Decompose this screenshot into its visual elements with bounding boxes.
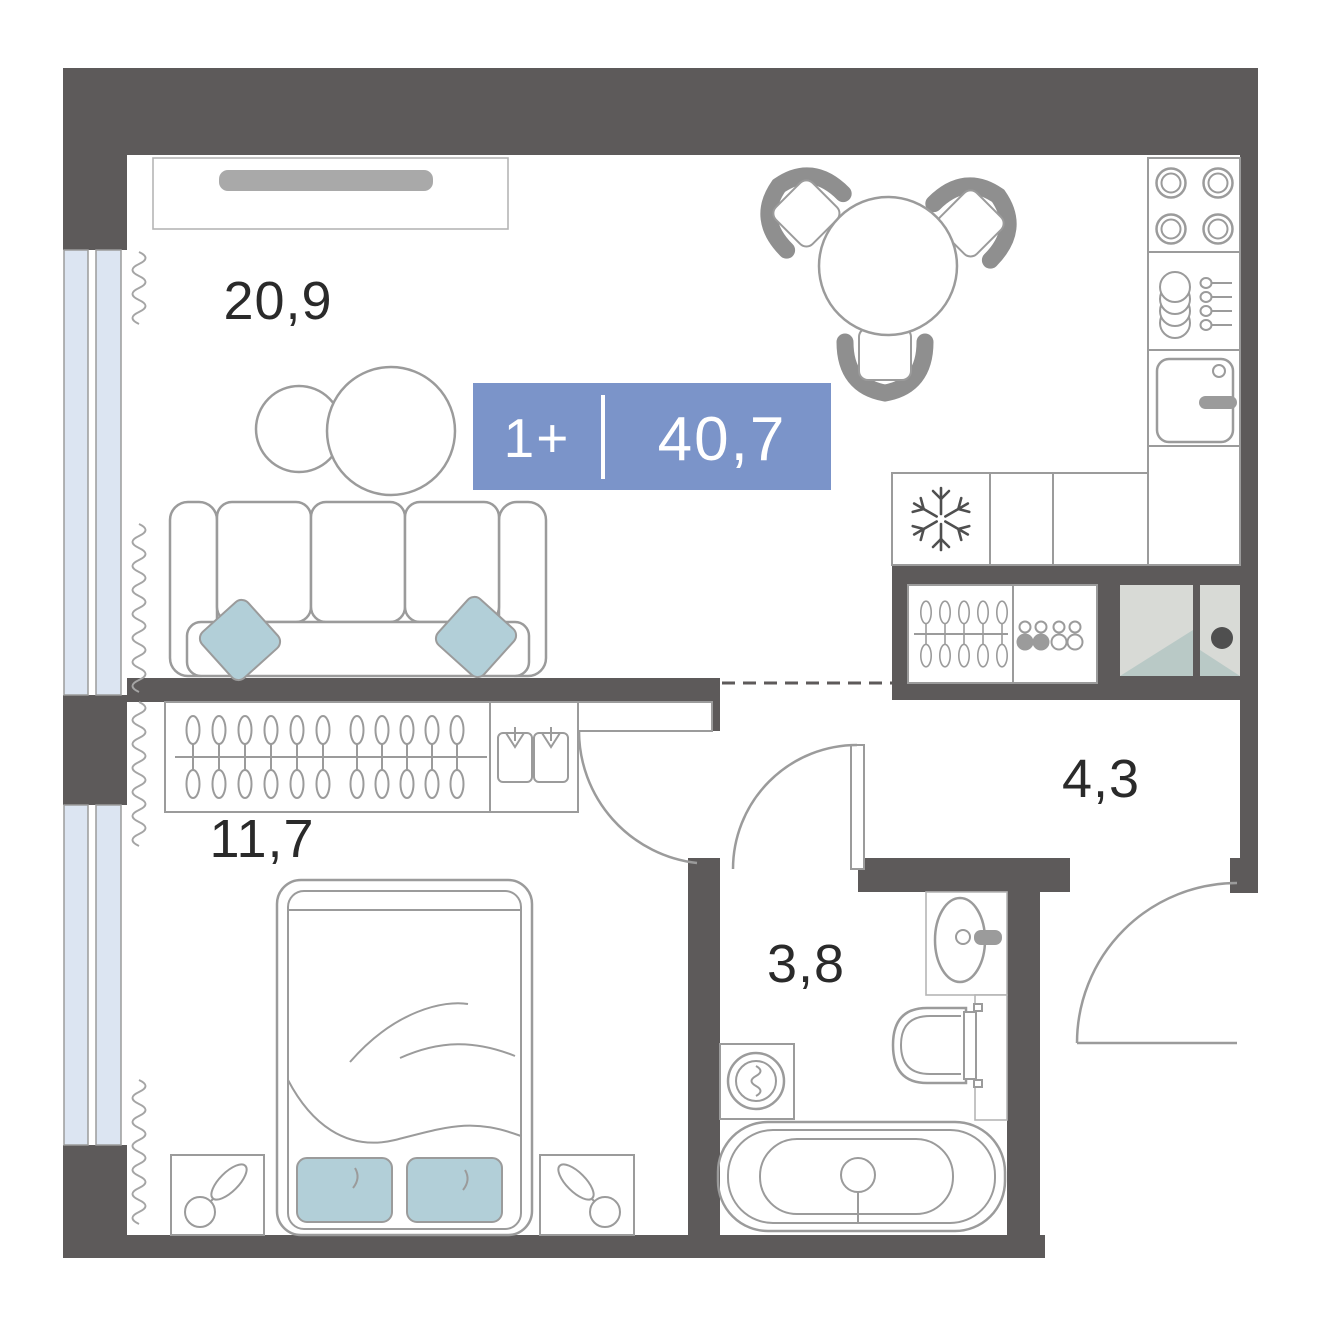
faucet-icon: [974, 930, 1002, 945]
dining-set: [751, 158, 1027, 393]
radiator-zigzag: [133, 252, 146, 324]
floor-plan-canvas: 20,9: [0, 0, 1320, 1320]
hallway-area-label: 4,3: [1062, 749, 1140, 809]
wall-left-upper: [63, 155, 127, 250]
bedroom-window-outer-pane: [64, 805, 88, 1145]
hallway-wardrobe: [908, 585, 1097, 683]
tv-stand: [153, 158, 508, 229]
area-badge: 1+ 40,7: [473, 383, 831, 490]
living-room-area-label: 20,9: [223, 271, 332, 331]
bathtub: [718, 1122, 1005, 1231]
sofa-cushion: [311, 502, 405, 622]
door-leaf: [578, 702, 712, 731]
wall-left-middle: [63, 695, 127, 805]
faucet-icon: [1199, 396, 1237, 409]
bathroom-sink: [926, 892, 1007, 1120]
counter-strip: [975, 995, 1007, 1120]
radiator-zigzag: [133, 1080, 146, 1224]
wall-bottom: [63, 1235, 1045, 1258]
toilet-bowl: [893, 1008, 966, 1083]
wall-right: [1240, 68, 1258, 890]
kitchen-base-cabinets: [892, 473, 1148, 565]
sofa: [170, 502, 546, 684]
bedroom: 11,7: [165, 702, 712, 1235]
dining-chair: [845, 328, 925, 393]
sink-drain: [956, 930, 970, 944]
bed-pillow: [407, 1158, 502, 1222]
radiator-zigzag: [133, 524, 146, 692]
plate-stack-icon: [1160, 272, 1190, 302]
sofa-cushion: [217, 502, 311, 622]
bathroom-door: [733, 745, 864, 869]
floor-plan: 20,9: [0, 0, 1320, 1320]
washing-machine: [720, 1044, 794, 1119]
toilet-tank: [964, 1012, 976, 1079]
entry-door-frame-stub: [1230, 858, 1258, 893]
wall-top: [63, 68, 1258, 155]
coffee-table-large: [327, 367, 455, 495]
toilet-bolt: [974, 1004, 982, 1011]
badge-total-area: 40,7: [658, 405, 787, 474]
door-arc: [733, 745, 857, 869]
wall-bathroom-right: [1007, 892, 1040, 1235]
utility-shaft-panels: [1120, 585, 1240, 676]
dining-table: [819, 197, 957, 335]
bed-pillow: [297, 1158, 392, 1222]
bedroom-door: [578, 702, 712, 863]
nightstand-left: [171, 1155, 264, 1235]
toilet: [893, 1004, 982, 1087]
wall-bathroom-top: [858, 858, 1070, 892]
door-arc: [579, 731, 697, 863]
entrance-door-arc: [1077, 883, 1237, 1043]
bathroom-area-label: 3,8: [767, 934, 845, 994]
badge-divider: [601, 395, 605, 479]
bedroom-area-label: 11,7: [209, 809, 314, 869]
entrance-door: [1077, 883, 1237, 1043]
wall-living-bedroom-divider: [127, 678, 720, 702]
shaft-access-dot: [1211, 627, 1233, 649]
radiator-zigzags: [133, 252, 146, 1224]
bathtub-rim: [728, 1130, 995, 1223]
bedroom-wardrobe: [165, 702, 578, 812]
nightstand-right: [540, 1155, 634, 1235]
wall-bathroom-left: [688, 858, 720, 1235]
badge-layout-label: 1+: [504, 407, 571, 469]
bed: [277, 880, 532, 1235]
bathtub-basin: [760, 1139, 953, 1214]
tv: [219, 170, 433, 191]
bathtub-drain: [841, 1158, 875, 1192]
toilet-bolt: [974, 1080, 982, 1087]
living-window-inner-pane: [96, 250, 121, 695]
radiator-zigzag: [133, 702, 146, 846]
living-window-outer-pane: [64, 250, 88, 695]
door-leaf: [851, 745, 864, 869]
bedroom-window-inner-pane: [96, 805, 121, 1145]
bathroom: 3,8: [718, 745, 1007, 1231]
